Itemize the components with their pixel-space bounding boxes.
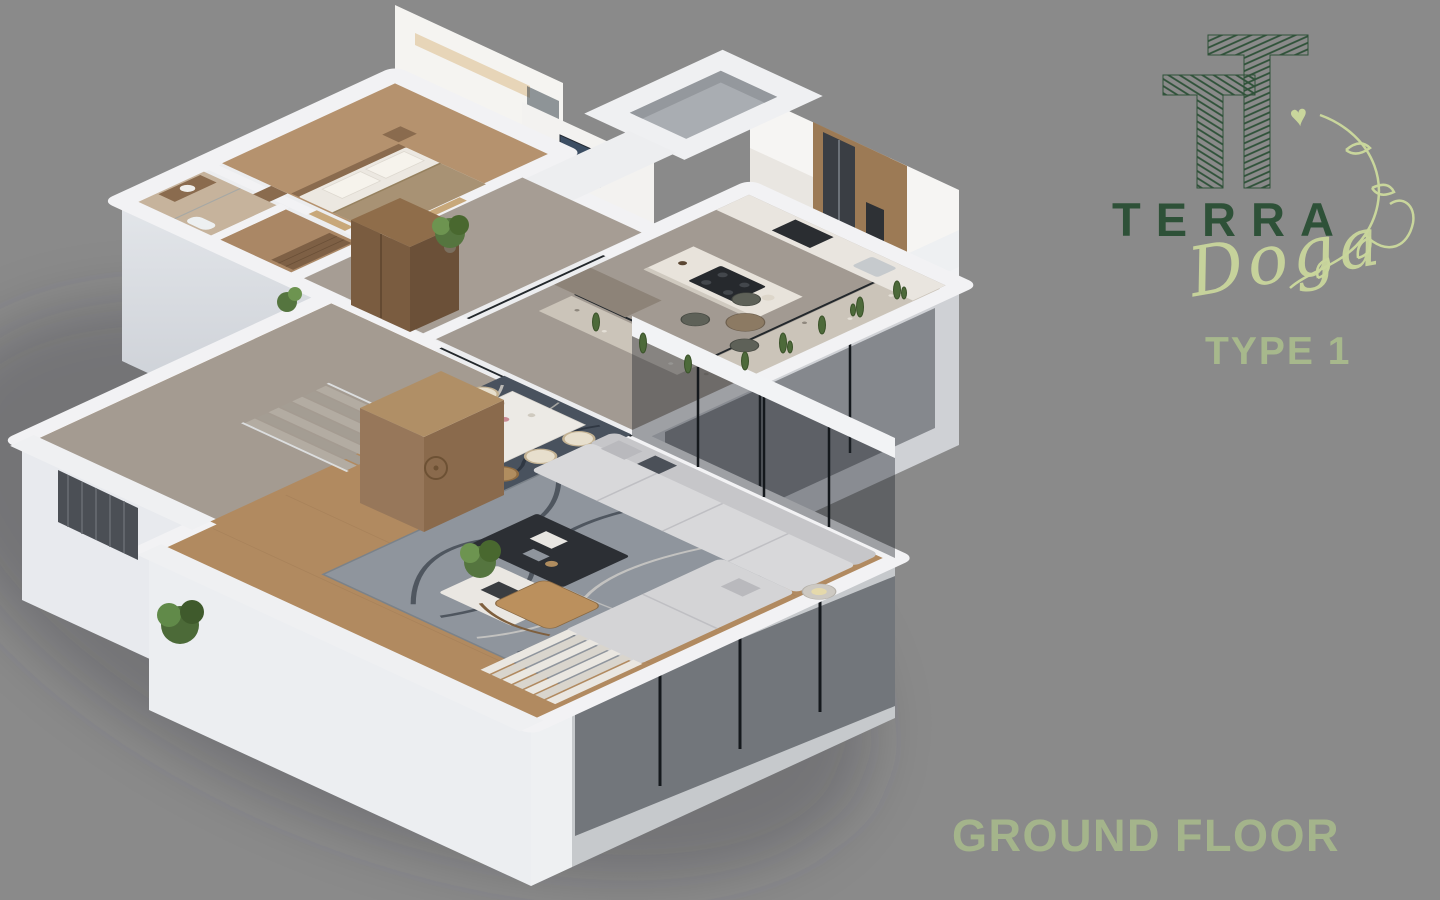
floor-label: GROUND FLOOR [952,810,1340,862]
logo-letter-t-left [1163,75,1255,188]
floorplan-3d-render [0,0,1440,900]
marketing-render-page: { "brand": { "monogram": "TT", "name": "… [0,0,1440,900]
type-label: TYPE 1 [1205,330,1351,374]
